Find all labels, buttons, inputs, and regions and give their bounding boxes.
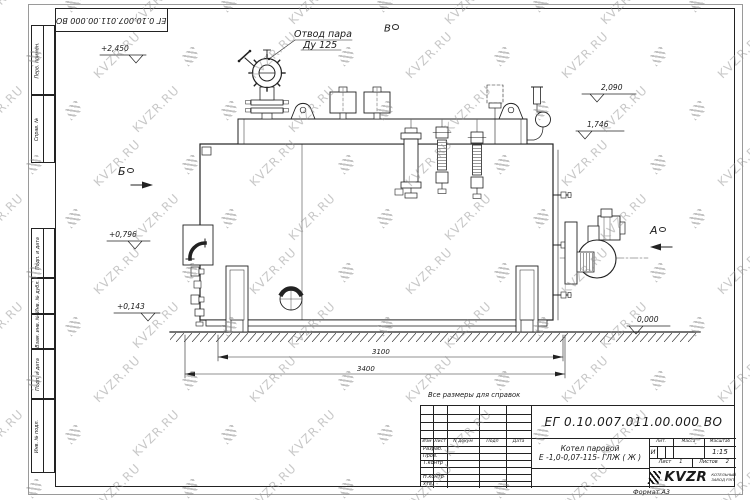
dimension-3400: 3400: [357, 366, 375, 373]
elevation-2090: 2,090: [601, 84, 622, 92]
dimension-3100: 3100: [372, 349, 390, 356]
boiler-drawing-geometry: [0, 0, 750, 500]
ground-line: [170, 332, 700, 342]
view-marker-a: А: [650, 225, 666, 236]
steam-outlet-note-line1: Отвод пара: [294, 30, 352, 40]
pressure-gauge: [527, 87, 551, 140]
view-ref-oval: [127, 168, 134, 174]
steam-outlet-note-line2: Ду 125: [303, 41, 337, 51]
boiler-body: [200, 119, 648, 326]
burner: [565, 209, 625, 284]
elevation-2450: +2,450: [101, 45, 129, 53]
lifting-lugs: [291, 103, 523, 119]
view-marker-b: Б: [118, 166, 134, 177]
view-ref-oval: [392, 24, 399, 30]
view-ref-oval: [659, 227, 666, 233]
elevation-0143: +0,143: [117, 303, 145, 311]
manhole: [280, 288, 302, 310]
safety-valves: [330, 87, 390, 119]
steam-valve: [238, 50, 289, 119]
view-marker-v: В: [384, 24, 399, 35]
drawing-sheet: KVZR.RUKVZR.RUKVZR.RUKVZR.RUKVZR.RUKVZR.…: [0, 0, 750, 500]
elevation-0796: +0,796: [109, 231, 137, 239]
elevation-1746: 1,746: [587, 121, 608, 129]
elevation-0000: 0,000: [637, 316, 658, 324]
